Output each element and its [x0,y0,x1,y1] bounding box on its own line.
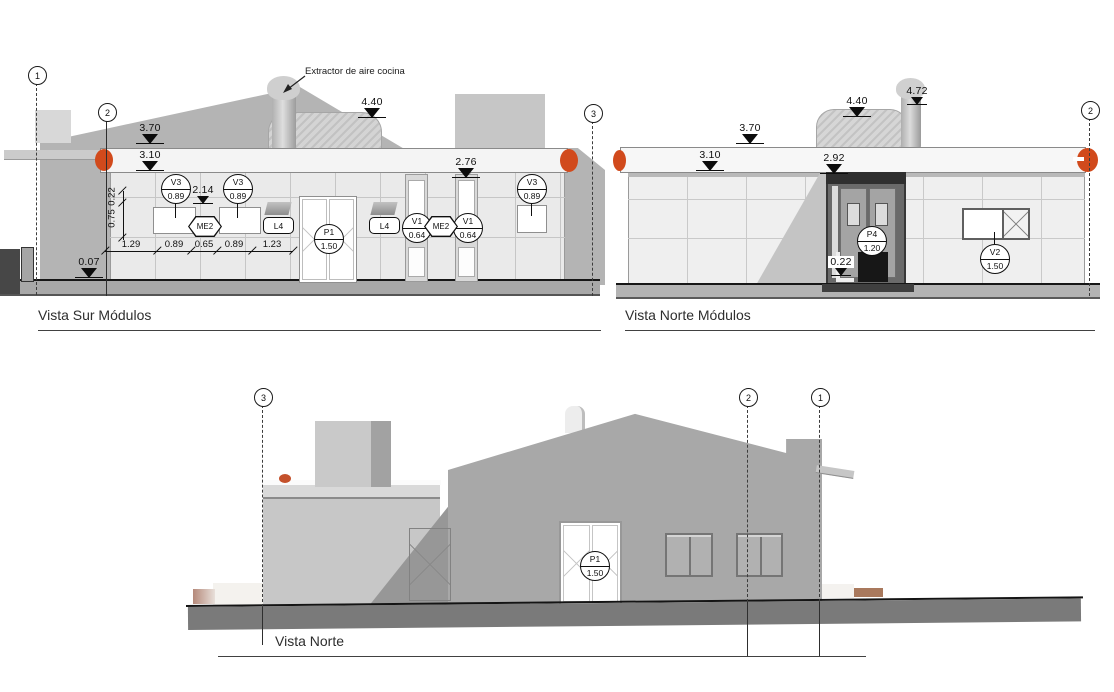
dim-line-vertical [123,191,124,240]
level-marker: 2.14 [186,184,220,204]
side-door-outline [409,528,451,601]
grid-bubble-2: 2 [739,388,758,407]
leader-line [994,232,995,244]
door-threshold [822,284,914,292]
ground-strip [0,281,600,296]
orange-beam-end-left [613,150,626,171]
fascia-band [620,147,1086,173]
view-title: Vista Sur Módulos [38,307,151,323]
door-vision-panel [847,203,860,226]
window-highlight [667,535,711,537]
drawing-canvas: 1 2 3 Extractor de aire cocina 3.70 3.10… [0,0,1114,692]
tag-v2: V21.50 [980,244,1010,274]
window-v2-casement [1002,210,1028,238]
grid-bubble-1: 1 [811,388,830,407]
dim-label: 1.29 [116,239,146,250]
grid-line-3 [592,121,593,296]
sliding-window [665,533,713,577]
level-marker: 4.72 [900,85,934,105]
grid-label: 3 [261,393,266,403]
dim-label: 1.23 [257,239,287,250]
level-marker: 4.40 [355,96,389,118]
orange-beam-end-left [95,149,113,171]
leader-line [175,202,176,218]
rooftop-box-left [35,110,71,143]
level-marker: 3.10 [133,149,167,171]
grid-line-1 [36,83,37,295]
arrow-icon [280,74,306,96]
grid-label: 1 [35,71,40,81]
level-marker: 4.40 [840,95,874,117]
window-mullion [760,535,762,575]
door-opening-dark [858,252,888,282]
grid-bubble-2: 2 [1081,101,1100,120]
dim-label: 0.89 [159,239,189,250]
rooftop-box-right [455,94,545,148]
window-v1-pane [458,247,475,277]
orange-beam-end-right [560,149,578,172]
title-underline [38,330,601,331]
grid-bubble-2: 2 [98,103,117,122]
leader-line [531,202,532,216]
terrain-object-brown [854,588,883,597]
tag-v3: V30.89 [161,174,191,204]
window-mullion [689,535,691,575]
window-v3-2 [219,207,261,234]
dim-line-horizontal [105,251,293,252]
level-marker: 2.76 [449,156,483,178]
fascia-band [100,148,568,173]
tag-p4: P41.20 [857,226,887,256]
fence-post-dark [0,249,20,294]
leader-line [237,202,238,218]
orange-beam-end [279,474,291,483]
level-marker: 0.07 [72,256,106,278]
grid-bubble-1: 1 [28,66,47,85]
level-marker: 3.70 [733,122,767,144]
extractor-note: Extractor de aire cocina [305,66,405,77]
view-title: Vista Norte [275,633,344,649]
grid-line-1 [819,405,820,602]
grid-line-2-tail [747,602,748,657]
tag-v3: V30.89 [223,174,253,204]
level-marker: 0.22 [824,256,858,276]
grid-line-2 [747,405,748,602]
terrain-object-white [822,584,854,598]
grid-line-3-tail [262,607,263,645]
window-v1-pane [408,247,425,277]
level-marker: 2.92 [817,152,851,174]
hex-tag-me2: ME2 [424,216,458,237]
beam-notch [1073,157,1084,161]
tag-p1: P11.50 [580,551,610,581]
dim-label: 0.22 [107,185,118,209]
lamp-awning-icon [370,202,397,215]
view-vista-norte: 3 2 1 P11.50 Vista Norte [0,0,1114,692]
dim-label: 0.65 [189,239,219,250]
grid-line-1-tail [819,602,820,657]
level-marker: 3.10 [693,149,727,171]
grid-label: 1 [818,393,823,403]
grid-line-2 [1089,118,1090,296]
dim-label: 0.89 [219,239,249,250]
grid-label: 2 [1088,106,1093,116]
view-title: Vista Norte Módulos [625,307,751,323]
label-l4: L4 [369,217,400,234]
grid-bubble-3: 3 [254,388,273,407]
title-underline [218,656,866,657]
hex-tag-me2: ME2 [188,216,222,237]
tag-p1: P11.50 [314,224,344,254]
terrain-object-red [193,589,215,604]
level-marker: 3.70 [133,122,167,144]
door-vision-panel [875,203,888,226]
window-highlight [738,535,781,537]
title-underline [625,330,1095,331]
chimney-icon [565,406,585,433]
grid-label: 3 [591,109,596,119]
extractor-chimney-body [272,92,296,150]
tag-v3: V30.89 [517,174,547,204]
window-v3-3 [517,205,547,233]
sliding-window [736,533,783,577]
grid-label: 2 [746,393,751,403]
grid-line-3 [262,405,263,607]
module-fascia [263,485,440,499]
terrain-object-white [213,583,263,606]
rooftop-box-side [371,421,391,487]
label-l4: L4 [263,217,294,234]
dim-label: 0.75 [107,207,118,231]
grid-bubble-3: 3 [584,104,603,123]
lamp-awning-icon [264,202,291,215]
grid-label: 2 [105,108,110,118]
fence-post-light [21,247,34,282]
